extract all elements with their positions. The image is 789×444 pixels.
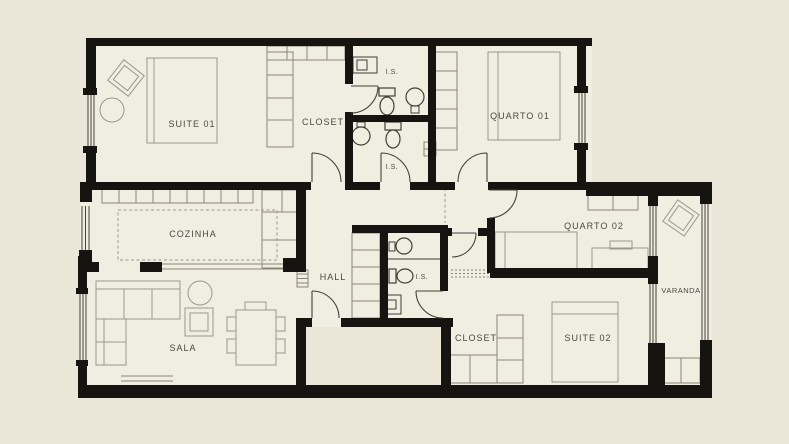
entry-recess (306, 327, 443, 385)
room-label-suite-02: SUITE 02 (564, 333, 611, 343)
is2-toilet (385, 122, 401, 148)
room-label-sala: SALA (169, 343, 196, 353)
room-label-hall: HALL (320, 272, 347, 282)
floor-plan-page: SUITE 01 CLOSET I.S. QUARTO 01 I.S. COZI… (0, 0, 789, 444)
room-label-is-2: I.S. (386, 164, 399, 171)
is1-toilet (379, 88, 395, 115)
room-label-cozinha: COZINHA (169, 229, 217, 239)
room-label-quarto-02: QUARTO 02 (564, 221, 624, 231)
room-label-quarto-01: QUARTO 01 (490, 111, 550, 121)
floor-plan-drawing: SUITE 01 CLOSET I.S. QUARTO 01 I.S. COZI… (0, 0, 789, 444)
room-label-is-1: I.S. (386, 69, 399, 76)
room-label-closet-2: CLOSET (455, 333, 497, 343)
room-label-is-3: I.S. (416, 274, 429, 281)
room-label-closet-1: CLOSET (302, 117, 344, 127)
is3-toilet (389, 269, 413, 283)
room-label-varanda: VARANDA (661, 286, 700, 295)
room-label-suite-01: SUITE 01 (168, 119, 215, 129)
